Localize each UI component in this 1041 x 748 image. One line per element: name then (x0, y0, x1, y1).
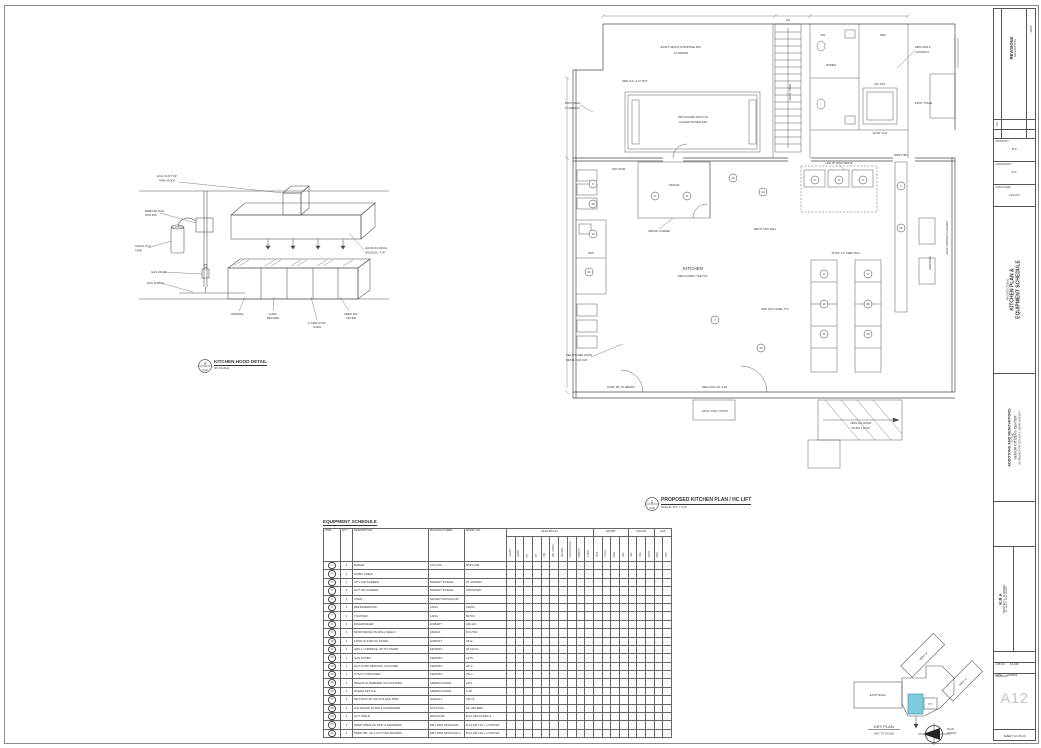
schedule-utility-cell (654, 612, 663, 620)
schedule-utility-cell (541, 629, 550, 637)
schedule-utility-cell (515, 595, 524, 603)
schedule-utility-cell (637, 587, 646, 595)
schedule-utility-cell (619, 696, 628, 704)
annotation-label: NEW CLG. & LT. FIXT. (622, 79, 648, 83)
item-number-bubble: 4 (328, 587, 335, 594)
schedule-sub-header: SIZE (611, 537, 620, 562)
schedule-utility-cell (576, 620, 585, 628)
schedule-utility-cell (559, 679, 568, 687)
schedule-utility-cell (628, 662, 637, 670)
schedule-cell: 1 (341, 578, 353, 586)
annotation-label: TO REMAIN (674, 51, 688, 55)
schedule-utility-cell (567, 620, 576, 628)
sheet-title-line2: EQUIPMENT SCHEDULE (1016, 260, 1022, 319)
schedule-utility-cell (585, 721, 594, 729)
schedule-utility-cell (576, 671, 585, 679)
schedule-utility-cell (515, 662, 524, 670)
schedule-row: 161STEAM KETTLEAMERIKOOLERK-60 (324, 687, 672, 695)
schedule-utility-cell (654, 603, 663, 611)
schedule-utility-cell (507, 654, 516, 662)
annotation-label: WOMEN (826, 63, 836, 67)
schedule-utility-cell (550, 578, 559, 586)
schedule-utility-cell (628, 687, 637, 695)
schedule-utility-cell (585, 696, 594, 704)
schedule-cell: STEAM KETTLE (353, 687, 429, 695)
schedule-utility-cell (576, 687, 585, 695)
schedule-utility-cell (646, 578, 655, 586)
schedule-utility-cell (541, 587, 550, 595)
schedule-utility-cell (654, 704, 663, 712)
schedule-utility-cell (646, 671, 655, 679)
schedule-cell: PREP TABLE W/ SINK & DRAWERS (353, 721, 429, 729)
schedule-utility-cell (524, 637, 533, 645)
schedule-utility-cell (515, 570, 524, 578)
schedule-utility-cell (628, 645, 637, 653)
schedule-utility-cell (593, 704, 602, 712)
schedule-utility-cell (567, 595, 576, 603)
schedule-utility-cell (637, 603, 646, 611)
schedule-utility-cell (602, 704, 611, 712)
kitchen-plan-caption: 1 A12 PROPOSED KITCHEN PLAN / HC LIFT SC… (645, 497, 751, 511)
schedule-utility-cell (550, 679, 559, 687)
schedule-cell: ICE MAKER W/ BIN & DISPENSER (353, 704, 429, 712)
item-number-bubble: 8 (328, 621, 335, 628)
item-number-bubble: 12 (328, 654, 335, 661)
schedule-utility-cell (637, 679, 646, 687)
schedule-utility-cell (524, 721, 533, 729)
schedule-cell: MILK BOX W/ COLD PLATE TRIM (353, 696, 429, 704)
schedule-utility-cell (515, 637, 524, 645)
sheet-title-block: ARCHITECTURAL KITCHEN PLAN & EQUIPMENT S… (995, 210, 1036, 370)
schedule-utility-cell (515, 654, 524, 662)
schedule-sub-header: J-BOX (585, 537, 594, 562)
schedule-utility-cell (619, 612, 628, 620)
annotation-label: COOLER ON NEW PAD (679, 120, 707, 124)
schedule-utility-cell (637, 654, 646, 662)
schedule-utility-cell (602, 570, 611, 578)
schedule-utility-cell (559, 696, 568, 704)
schedule-utility-cell (646, 645, 655, 653)
schedule-cell: 1 (341, 595, 353, 603)
schedule-utility-cell (559, 603, 568, 611)
schedule-utility-cell (663, 729, 672, 737)
schedule-utility-cell (628, 587, 637, 595)
schedule-utility-cell (593, 713, 602, 721)
schedule-utility-cell (646, 654, 655, 662)
schedule-utility-cell (663, 704, 672, 712)
schedule-utility-cell (515, 562, 524, 570)
schedule-utility-cell (585, 729, 594, 737)
schedule-utility-cell (567, 687, 576, 695)
schedule-utility-cell (576, 662, 585, 670)
schedule-utility-cell (646, 729, 655, 737)
schedule-utility-cell (567, 562, 576, 570)
schedule-utility-cell (654, 570, 663, 578)
schedule-cell: 1 (341, 629, 353, 637)
revisions-description-col: DESCRIPTION (1014, 37, 1017, 60)
schedule-utility-cell (541, 603, 550, 611)
schedule-utility-cell (550, 645, 559, 653)
plan-equipment-callouts: 615122158161423491011171819120713 (585, 174, 905, 352)
schedule-cell: HOBART (429, 637, 465, 645)
schedule-utility-cell (611, 612, 620, 620)
schedule-utility-cell (602, 679, 611, 687)
annotation-label: EXIST. STAIR (788, 84, 792, 100)
schedule-utility-cell (515, 578, 524, 586)
schedule-utility-cell (654, 679, 663, 687)
schedule-utility-cell (533, 629, 542, 637)
schedule-utility-cell (663, 562, 672, 570)
item-number-bubble: 5 (328, 596, 335, 603)
schedule-utility-cell (541, 612, 550, 620)
schedule-cell: KEATING (429, 645, 465, 653)
schedule-utility-cell (550, 671, 559, 679)
schedule-utility-cell (576, 612, 585, 620)
schedule-cell: HOT TABLE (353, 713, 429, 721)
annotation-label: RELOCATED WALK-IN (678, 115, 707, 119)
schedule-utility-cell (619, 595, 628, 603)
schedule-utility-cell (559, 704, 568, 712)
schedule-utility-cell (628, 679, 637, 687)
schedule-utility-cell (663, 696, 672, 704)
schedule-utility-cell (585, 578, 594, 586)
schedule-cell: OVEN (353, 595, 429, 603)
schedule-utility-cell (533, 645, 542, 653)
schedule-cell: WORK SHELF (353, 570, 429, 578)
schedule-cell: PREP TBL. W/ 2 CUTTING BOARDS (353, 729, 429, 737)
hc-ramp (818, 400, 902, 440)
schedule-column-header: QTY (341, 529, 353, 562)
kitchen-hood-detail-drawing: EXH. DUCT UPTHRU ROOFREMOTE PULLSTATIONA… (133, 163, 395, 391)
schedule-utility-cell (654, 562, 663, 570)
schedule-cell: 1 (341, 713, 353, 721)
schedule-utility-cell (619, 587, 628, 595)
key-plan-scale: NOT TO SCALE (874, 732, 894, 736)
schedule-row: 191HOT TABLEMODULARB-12-MFCM-SRA-4 (324, 713, 672, 721)
schedule-utility-cell (559, 595, 568, 603)
annotation-label: BROILER (267, 316, 279, 320)
exist-bldg-label: EXIST. BLDG. (870, 693, 887, 697)
schedule-utility-cell (550, 713, 559, 721)
detail-bubble: 4 A12 (198, 359, 212, 373)
schedule-column-header: MODEL NO. (465, 529, 507, 562)
schedule-utility-cell (507, 587, 516, 595)
equipment-callout-number: 10 (822, 302, 826, 306)
schedule-utility-cell (602, 612, 611, 620)
schedule-cell: MICROWAVE ON WALL SHELF (353, 629, 429, 637)
annotation-label: FRYER (346, 316, 355, 320)
schedule-utility-cell (611, 578, 620, 586)
schedule-utility-cell (515, 713, 524, 721)
schedule-utility-cell (611, 562, 620, 570)
equipment-callout-number: 21 (587, 270, 591, 274)
schedule-sub-header: SWITCH (576, 537, 585, 562)
schedule-utility-cell (637, 562, 646, 570)
schedule-utility-cell (646, 570, 655, 578)
schedule-utility-cell (619, 662, 628, 670)
schedule-cell: DISHWASHER (353, 620, 429, 628)
schedule-utility-cell (541, 578, 550, 586)
schedule-cell: 1 (341, 620, 353, 628)
schedule-utility-cell (602, 587, 611, 595)
plan-number: 1 (651, 499, 654, 504)
item-number-bubble: 7 (328, 612, 335, 619)
schedule-utility-cell (628, 654, 637, 662)
schedule-utility-cell (567, 704, 576, 712)
schedule-utility-cell (593, 629, 602, 637)
schedule-utility-cell (550, 570, 559, 578)
schedule-utility-cell (654, 671, 663, 679)
equipment-callout-number: 16 (731, 176, 735, 180)
schedule-utility-cell (515, 696, 524, 704)
schedule-cell: UD-1 (465, 671, 507, 679)
schedule-utility-cell (559, 570, 568, 578)
annotation-label: EXIST. WALL (565, 101, 581, 105)
schedule-utility-cell (576, 696, 585, 704)
equipment-callout-number: 19 (866, 332, 870, 336)
schedule-cell: RC17SD (465, 629, 507, 637)
schedule-utility-cell (654, 637, 663, 645)
schedule-utility-cell (663, 578, 672, 586)
schedule-cell: B-12-MFT-SL + CUSTOM (465, 729, 507, 737)
schedule-row: 21WORK SHELF (324, 570, 672, 578)
schedule-utility-cell (602, 729, 611, 737)
schedule-utility-cell (654, 595, 663, 603)
schedule-utility-cell (585, 587, 594, 595)
schedule-cell: 1 (341, 637, 353, 645)
annotation-label: JAN. (820, 33, 826, 37)
schedule-utility-cell (515, 629, 524, 637)
schedule-cell: 1 (341, 671, 353, 679)
schedule-utility-cell (576, 645, 585, 653)
item-number-bubble: 10 (328, 638, 335, 645)
schedule-utility-cell (533, 595, 542, 603)
schedule-utility-cell (611, 629, 620, 637)
schedule-utility-cell (550, 612, 559, 620)
schedule-group-header: WASTE (628, 529, 654, 537)
annotation-label: SEE KITCHEN HOOD (566, 353, 592, 357)
schedule-utility-cell (593, 696, 602, 704)
annotation-label: MOP (588, 252, 594, 255)
equipment-callout-number: 17 (866, 272, 870, 276)
schedule-utility-cell (515, 679, 524, 687)
schedule-utility-cell (576, 679, 585, 687)
schedule-utility-cell (654, 721, 663, 729)
schedule-utility-cell (567, 629, 576, 637)
schedule-utility-cell (559, 612, 568, 620)
schedule-utility-cell (550, 603, 559, 611)
field-value: M.F. (994, 147, 1035, 151)
field-label: CHECKED BY (994, 162, 1035, 166)
schedule-utility-cell (524, 662, 533, 670)
schedule-utility-cell (567, 696, 576, 704)
schedule-sub-header: BTU (663, 537, 672, 562)
schedule-utility-cell (507, 578, 516, 586)
schedule-utility-cell (515, 704, 524, 712)
annotation-label: DRY STOR. (612, 167, 626, 171)
hc-lift (863, 88, 897, 124)
schedule-utility-cell (541, 721, 550, 729)
schedule-sub-header: COLD (602, 537, 611, 562)
schedule-utility-cell (593, 662, 602, 670)
schedule-cell: ML-350-MED (465, 704, 507, 712)
schedule-utility-cell (533, 578, 542, 586)
schedule-group-header: WATER (593, 529, 628, 537)
schedule-utility-cell (628, 612, 637, 620)
schedule-utility-cell (593, 721, 602, 729)
item-number-bubble: 3 (328, 579, 335, 586)
hood-outline-above (801, 166, 877, 212)
project-title-block: ADDITIONS AND RENOVATIONS TO THE SENIOR … (995, 375, 1036, 501)
item-number-bubble: 20 (328, 721, 335, 728)
schedule-utility-cell (559, 671, 568, 679)
schedule-cell: RANGE (353, 562, 429, 570)
schedule-utility-cell (515, 687, 524, 695)
schedule-row: 211PREP TBL. W/ 2 CUTTING BOARDSMET-PRO … (324, 729, 672, 737)
schedule-utility-cell (637, 637, 646, 645)
schedule-utility-cell (637, 620, 646, 628)
schedule-row: 181ICE MAKER W/ BIN & DISPENSERNATIONALM… (324, 704, 672, 712)
schedule-utility-cell (602, 595, 611, 603)
annotation-label: NEW GATE & (915, 46, 931, 49)
schedule-utility-cell (576, 570, 585, 578)
item-number-bubble: 13 (328, 663, 335, 670)
schedule-utility-cell (637, 687, 646, 695)
annotation-label: NOZZLES, TYP. (365, 251, 385, 255)
schedule-utility-cell (507, 713, 516, 721)
schedule-utility-cell (567, 713, 576, 721)
schedule-utility-cell (637, 612, 646, 620)
schedule-utility-cell (533, 704, 542, 712)
schedule-utility-cell (602, 687, 611, 695)
schedule-utility-cell (619, 671, 628, 679)
schedule-utility-cell (663, 637, 672, 645)
plan-annotation-labels: EXIST. MULTI-PURPOSE RM.TO REMAINRELOCAT… (565, 19, 949, 430)
schedule-utility-cell (524, 696, 533, 704)
annotation-label: THRU ROOF (159, 179, 176, 183)
schedule-utility-cell (646, 612, 655, 620)
plan-north-label-2: NORTH (947, 731, 956, 735)
annotation-label: NEW 8" CMU WALL (754, 228, 777, 231)
schedule-cell: HOBART (429, 620, 465, 628)
schedule-utility-cell (541, 570, 550, 578)
schedule-utility-cell (611, 637, 620, 645)
schedule-utility-cell (619, 562, 628, 570)
equipment-callout-number: 14 (761, 190, 765, 194)
schedule-utility-cell (533, 612, 542, 620)
schedule-utility-cell (619, 654, 628, 662)
schedule-utility-cell (567, 654, 576, 662)
schedule-utility-cell (585, 687, 594, 695)
schedule-cell: 1 (341, 704, 353, 712)
schedule-utility-cell (637, 578, 646, 586)
schedule-utility-cell (602, 637, 611, 645)
schedule-utility-cell (602, 629, 611, 637)
schedule-utility-cell (524, 562, 533, 570)
schedule-utility-cell (593, 587, 602, 595)
schedule-utility-cell (550, 629, 559, 637)
schedule-utility-cell (602, 562, 611, 570)
schedule-utility-cell (567, 729, 576, 737)
schedule-utility-cell (611, 603, 620, 611)
schedule-utility-cell (654, 587, 663, 595)
schedule-utility-cell (654, 645, 663, 653)
schedule-utility-cell (654, 729, 663, 737)
schedule-utility-cell (628, 671, 637, 679)
sheet-number: A12 (994, 690, 1035, 707)
schedule-utility-cell (507, 662, 516, 670)
schedule-utility-cell (524, 603, 533, 611)
schedule-cell (465, 595, 507, 603)
schedule-utility-cell (585, 637, 594, 645)
schedule-utility-cell (646, 687, 655, 695)
schedule-column-header: ITEM (324, 529, 341, 562)
schedule-utility-cell (619, 603, 628, 611)
field-value: A12-KIT (994, 193, 1035, 197)
schedule-utility-cell (541, 645, 550, 653)
schedule-utility-cell (663, 620, 672, 628)
annotation-label: EXIST. DR. TO REMAIN (607, 386, 634, 389)
schedule-cell: MARKET FORGE (429, 578, 465, 586)
annotation-label: DETAIL THIS SHT. (566, 358, 588, 362)
schedule-cell (429, 570, 465, 578)
schedule-utility-cell (619, 721, 628, 729)
annotation-label: HOOD W/ ANSUL (365, 246, 388, 250)
schedule-utility-cell (646, 679, 655, 687)
annotation-label: NEW ALUM. DR. & FR. (702, 386, 728, 389)
schedule-utility-cell (559, 587, 568, 595)
schedule-utility-cell (507, 704, 516, 712)
schedule-utility-cell (611, 679, 620, 687)
schedule-utility-cell (567, 679, 576, 687)
equipment-schedule-table: ITEMQTYDESCRIPTIONMANUFACTURERMODEL NO.E… (323, 528, 672, 738)
schedule-utility-cell (663, 654, 672, 662)
equipment-schedule: ITEMQTYDESCRIPTIONMANUFACTURERMODEL NO.E… (323, 528, 672, 738)
schedule-utility-cell (663, 645, 672, 653)
schedule-utility-cell (637, 662, 646, 670)
schedule-utility-cell (559, 562, 568, 570)
schedule-utility-cell (585, 679, 594, 687)
schedule-sub-header: HOT (593, 537, 602, 562)
annotation-label: GAS SUPPLY (147, 281, 165, 285)
item-number-bubble: 21 (328, 730, 335, 737)
schedule-utility-cell (576, 654, 585, 662)
schedule-row: 111GRILL / GRIDDLE, 36" W/ STANDKEATING3… (324, 645, 672, 653)
schedule-utility-cell (550, 654, 559, 662)
schedule-utility-cell (576, 603, 585, 611)
schedule-utility-cell (619, 629, 628, 637)
plan-title: PROPOSED KITCHEN PLAN / HC LIFT (661, 497, 751, 505)
schedule-utility-cell (602, 671, 611, 679)
schedule-utility-cell (559, 654, 568, 662)
schedule-utility-cell (541, 679, 550, 687)
hood-detail-geometry (139, 182, 389, 320)
schedule-row: 61REFRIGERATORLANGK2000 (324, 603, 672, 611)
item-number-bubble: 14 (328, 671, 335, 678)
equipment-callout-number: 15 (591, 202, 595, 206)
annotation-label: EXIST. STAGE (915, 101, 933, 105)
schedule-cell: MET-PRO MODULAR (429, 721, 465, 729)
schedule-utility-cell (507, 679, 516, 687)
schedule-utility-cell (559, 662, 568, 670)
schedule-utility-cell (611, 654, 620, 662)
schedule-cell: LANG (429, 603, 465, 611)
key-plan-wing-b: WING 'B' (901, 633, 945, 677)
schedule-utility-cell (524, 578, 533, 586)
schedule-cell: 1 (341, 603, 353, 611)
schedule-utility-cell (602, 603, 611, 611)
schedule-utility-cell (541, 562, 550, 570)
